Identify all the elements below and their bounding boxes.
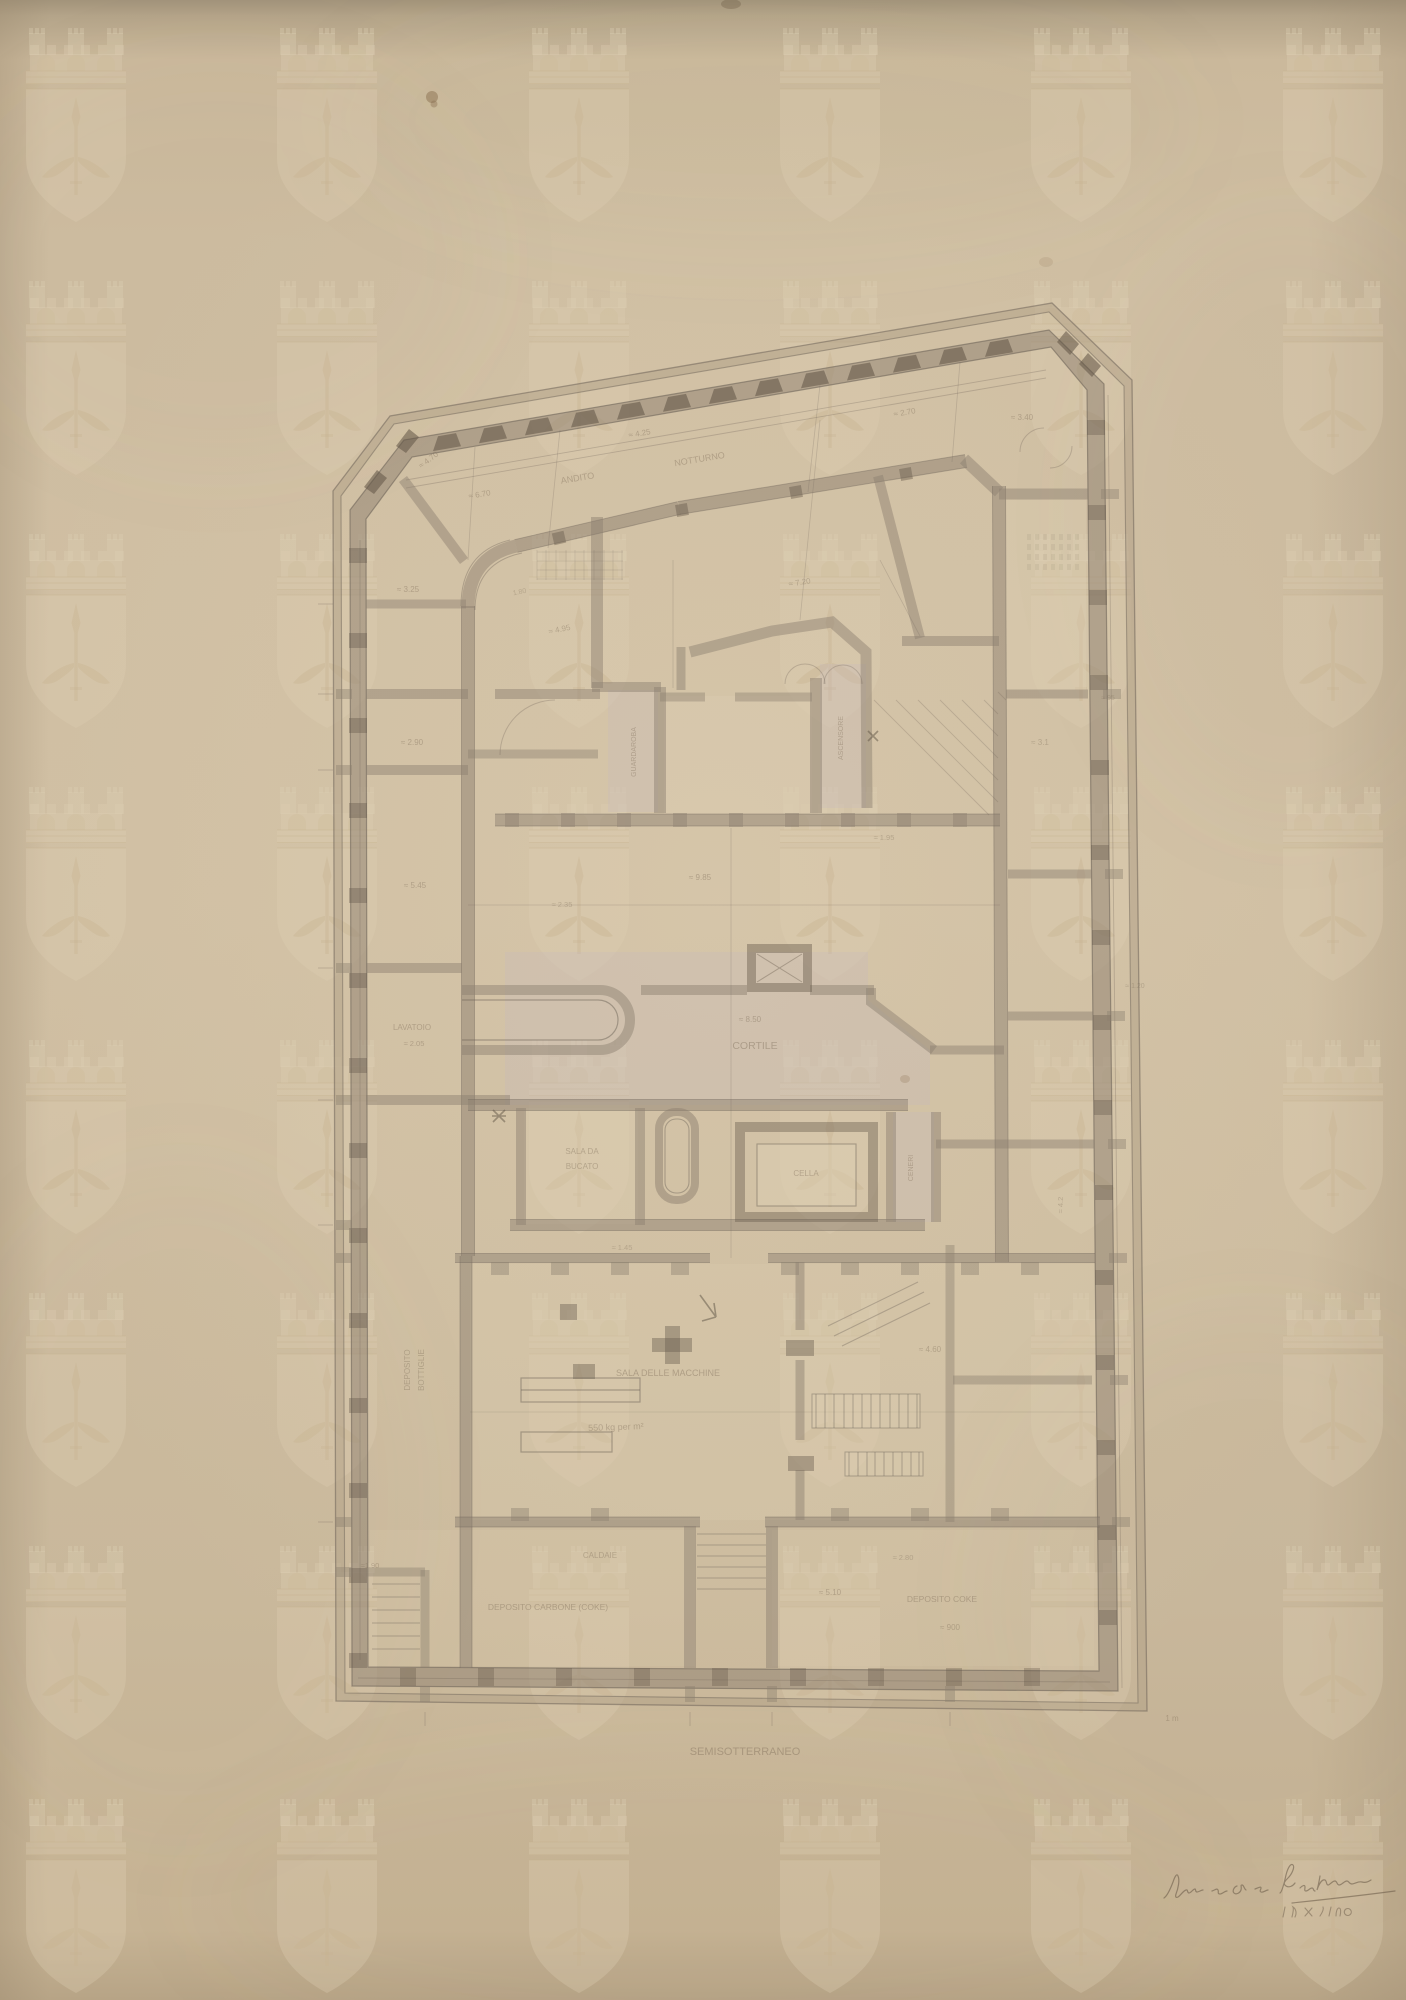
svg-text:≈ 1.45: ≈ 1.45 <box>612 1243 633 1252</box>
svg-text:≈ 3.40: ≈ 3.40 <box>1011 413 1034 422</box>
svg-text:≈ 5.10: ≈ 5.10 <box>819 1588 842 1597</box>
svg-text:CELLA: CELLA <box>793 1169 819 1178</box>
svg-text:≈ 1.95: ≈ 1.95 <box>874 833 895 842</box>
svg-text:≈ 4.2: ≈ 4.2 <box>1056 1197 1065 1214</box>
svg-text:DEPOSITO COKE: DEPOSITO COKE <box>907 1594 978 1604</box>
svg-text:CALDAIE: CALDAIE <box>583 1551 617 1560</box>
svg-text:ASCENSORE: ASCENSORE <box>838 716 845 760</box>
svg-text:LAVATOIO: LAVATOIO <box>393 1023 431 1032</box>
svg-text:≈ 95: ≈ 95 <box>1101 695 1115 702</box>
svg-text:BOTTIGLIE: BOTTIGLIE <box>417 1349 426 1391</box>
svg-text:≈ 2.80: ≈ 2.80 <box>893 1553 914 1562</box>
svg-text:DEPOSITO: DEPOSITO <box>403 1349 412 1390</box>
svg-text:550 kg per m²: 550 kg per m² <box>588 1421 644 1433</box>
svg-text:SALA DA: SALA DA <box>565 1147 599 1156</box>
svg-text:SEMISOTTERRANEO: SEMISOTTERRANEO <box>690 1746 801 1758</box>
svg-text:≈ 5.45: ≈ 5.45 <box>404 881 427 890</box>
svg-text:≈ 2.05: ≈ 2.05 <box>404 1039 425 1048</box>
svg-text:≈ 3.25: ≈ 3.25 <box>397 585 420 594</box>
svg-text:≈ 8.50: ≈ 8.50 <box>739 1015 762 1024</box>
svg-text:≈ 2.90: ≈ 2.90 <box>401 738 424 747</box>
svg-text:CENERI: CENERI <box>908 1155 915 1182</box>
svg-text:≈ 2.35: ≈ 2.35 <box>552 900 573 909</box>
svg-text:≈ 9.85: ≈ 9.85 <box>689 873 712 882</box>
svg-text:GUARDAROBA: GUARDAROBA <box>631 727 638 777</box>
svg-text:1 m: 1 m <box>1165 1714 1179 1723</box>
svg-text:≈ 900: ≈ 900 <box>940 1623 961 1632</box>
svg-text:SALA DELLE MACCHINE: SALA DELLE MACCHINE <box>616 1368 720 1378</box>
svg-text:CORTILE: CORTILE <box>732 1040 777 1052</box>
svg-text:BUCATO: BUCATO <box>566 1162 599 1171</box>
svg-text:≈ 3.1: ≈ 3.1 <box>1031 738 1049 747</box>
svg-text:≈ 1.20: ≈ 1.20 <box>1125 983 1145 990</box>
svg-text:≈1.90: ≈1.90 <box>361 1561 380 1570</box>
svg-text:DEPOSITO CARBONE (COKE): DEPOSITO CARBONE (COKE) <box>488 1602 608 1612</box>
svg-text:≈ 4.60: ≈ 4.60 <box>919 1345 942 1354</box>
